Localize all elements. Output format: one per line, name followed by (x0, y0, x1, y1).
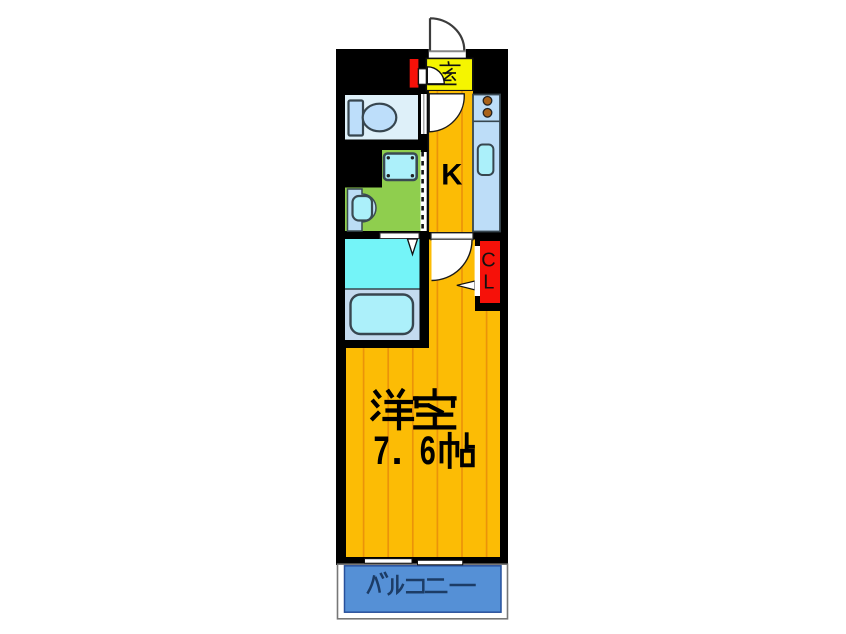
svg-text:7: 7 (374, 429, 390, 473)
svg-text:C: C (481, 250, 495, 272)
svg-text:L: L (483, 271, 494, 293)
svg-text:K: K (441, 158, 463, 191)
svg-text:.: . (392, 429, 403, 473)
svg-text:6: 6 (420, 429, 436, 473)
